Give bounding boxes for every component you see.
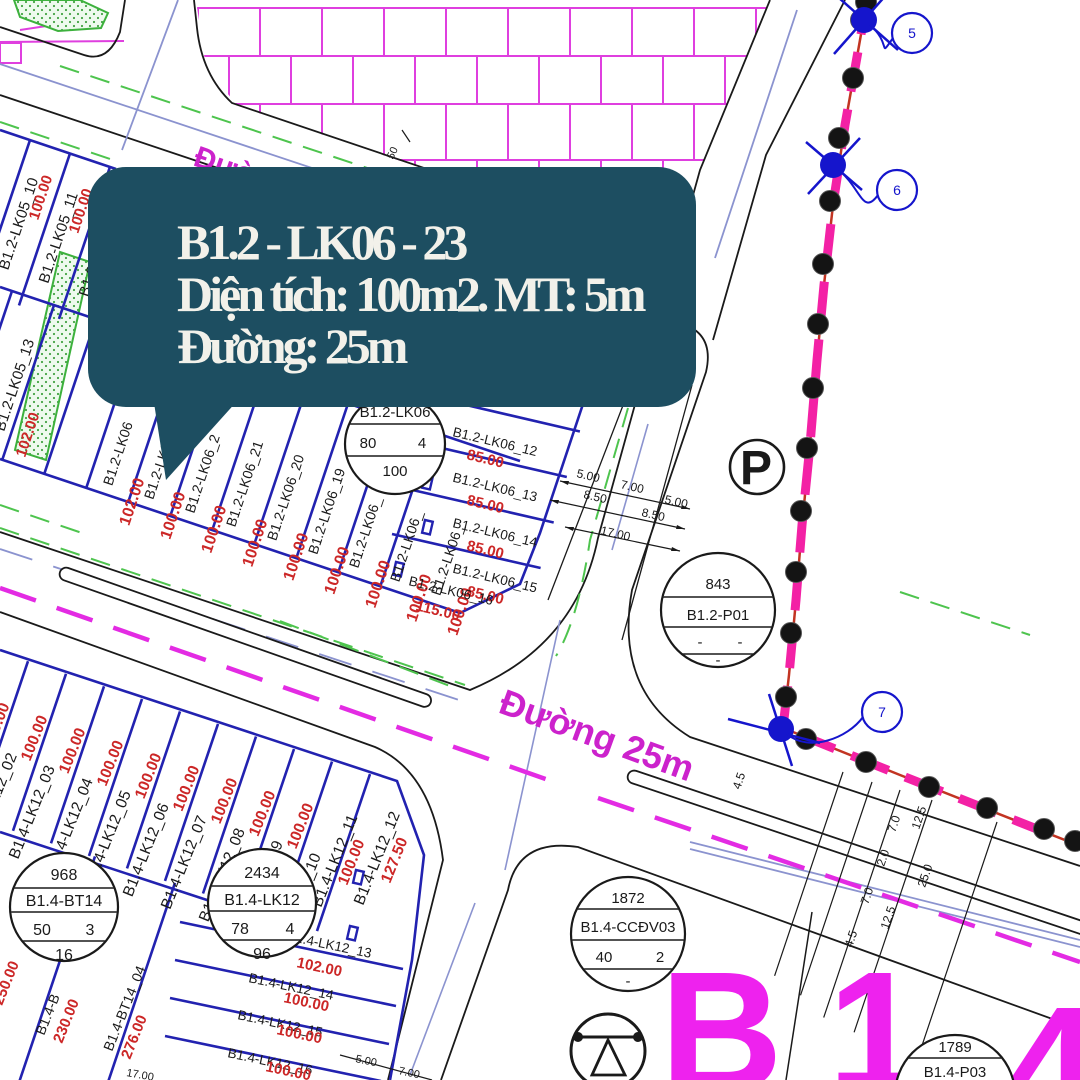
svg-text:B1.2-P01: B1.2-P01: [687, 607, 750, 624]
svg-text:6: 6: [893, 182, 901, 198]
svg-text:Đường: 25m: Đường: 25m: [177, 318, 408, 374]
svg-text:1789: 1789: [938, 1039, 971, 1056]
svg-text:4: 4: [286, 921, 295, 938]
svg-text:78: 78: [231, 921, 249, 938]
svg-text:B1.4-P03: B1.4-P03: [924, 1064, 987, 1080]
svg-text:40: 40: [596, 949, 613, 966]
svg-text:2: 2: [656, 949, 664, 966]
svg-text:B1.2 - LK06 - 23: B1.2 - LK06 - 23: [177, 214, 467, 270]
svg-text:100: 100: [382, 463, 407, 480]
svg-text:3: 3: [86, 922, 95, 939]
svg-text:P: P: [740, 442, 772, 495]
svg-text:B1.4-BT14: B1.4-BT14: [26, 893, 103, 910]
svg-text:968: 968: [51, 867, 78, 884]
svg-text:-: -: [716, 652, 721, 669]
svg-text:50: 50: [33, 922, 51, 939]
svg-text:7: 7: [878, 704, 886, 720]
svg-text:1872: 1872: [611, 890, 644, 907]
svg-text:4: 4: [1005, 972, 1080, 1080]
svg-text:-: -: [738, 634, 743, 651]
svg-text:4: 4: [418, 435, 426, 452]
svg-text:5: 5: [908, 25, 916, 41]
svg-text:843: 843: [705, 576, 730, 593]
svg-text:16: 16: [55, 947, 73, 964]
svg-text:-: -: [626, 973, 631, 990]
svg-text:96: 96: [253, 946, 271, 963]
svg-text:B1.4-CCĐV03: B1.4-CCĐV03: [580, 919, 675, 936]
svg-text:B1.4-LK12: B1.4-LK12: [224, 892, 300, 909]
svg-text:2434: 2434: [244, 865, 280, 882]
svg-text:Diện tích: 100m2. MT: 5m: Diện tích: 100m2. MT: 5m: [177, 266, 646, 322]
svg-text:80: 80: [360, 435, 377, 452]
svg-text:-: -: [698, 634, 703, 651]
